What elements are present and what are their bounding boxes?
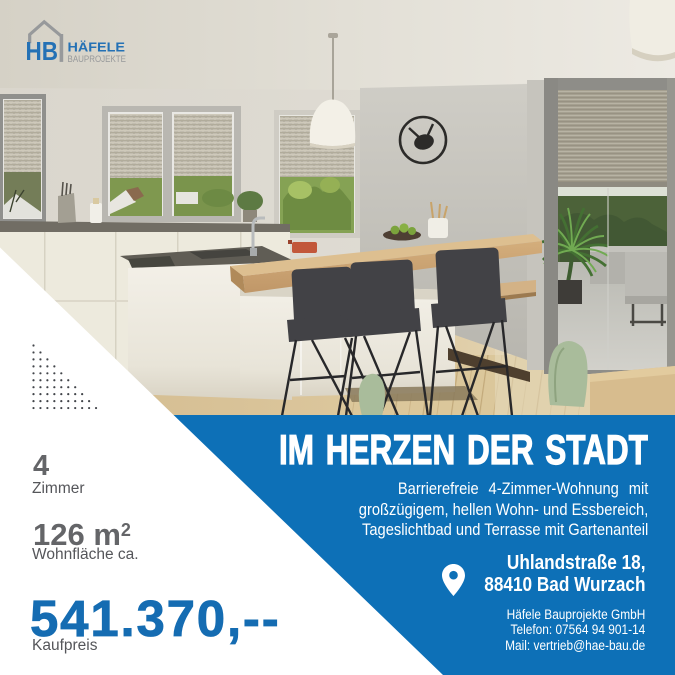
svg-text:HB: HB [26, 36, 59, 66]
svg-text:HÄFELE: HÄFELE [68, 40, 126, 55]
svg-text:BAUPROJEKTE: BAUPROJEKTE [68, 54, 127, 65]
